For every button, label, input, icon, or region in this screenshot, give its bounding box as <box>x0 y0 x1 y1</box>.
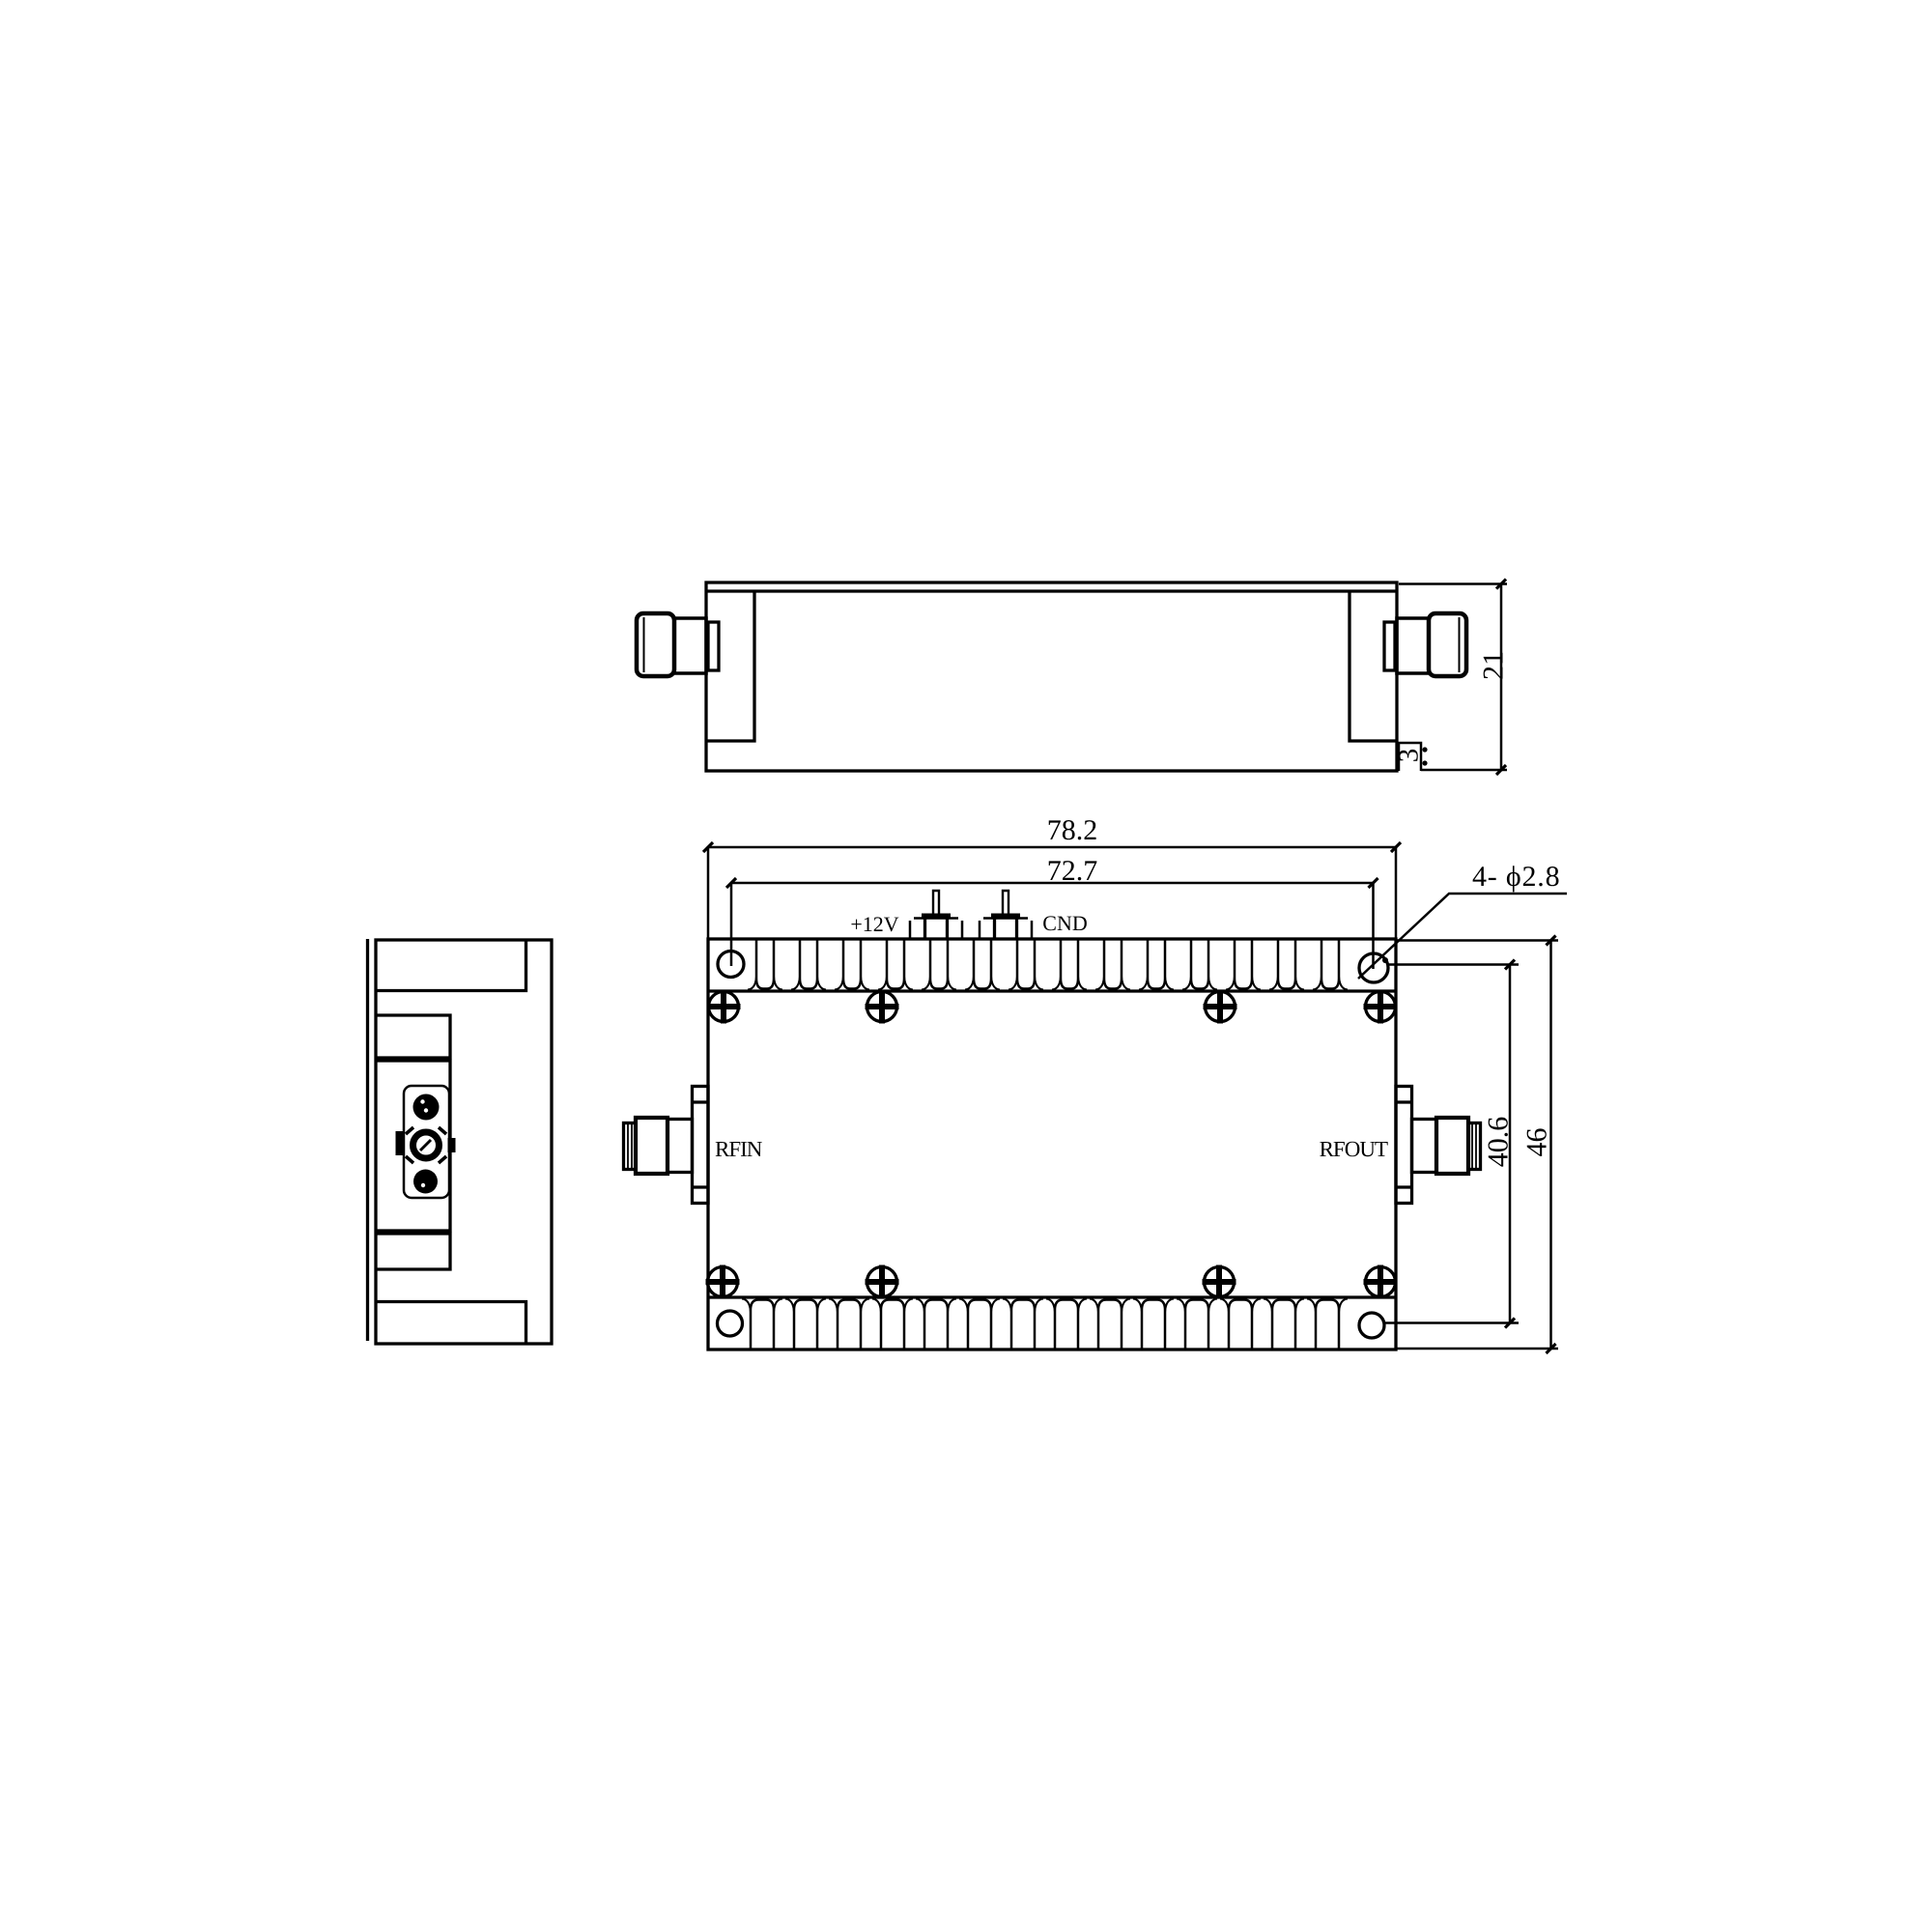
svg-text:72.7: 72.7 <box>1047 855 1098 887</box>
svg-text:4- ϕ2.8: 4- ϕ2.8 <box>1472 861 1560 893</box>
svg-text:RFOUT: RFOUT <box>1320 1137 1388 1161</box>
svg-text:40.6: 40.6 <box>1483 1117 1515 1168</box>
svg-text:78.2: 78.2 <box>1047 814 1098 846</box>
svg-text:3: 3 <box>1394 749 1425 763</box>
svg-text:46: 46 <box>1521 1128 1553 1157</box>
svg-text:21: 21 <box>1478 651 1510 680</box>
svg-text:+12V: +12V <box>850 912 898 936</box>
svg-text:CND: CND <box>1042 911 1087 935</box>
svg-text:RFIN: RFIN <box>715 1137 763 1161</box>
